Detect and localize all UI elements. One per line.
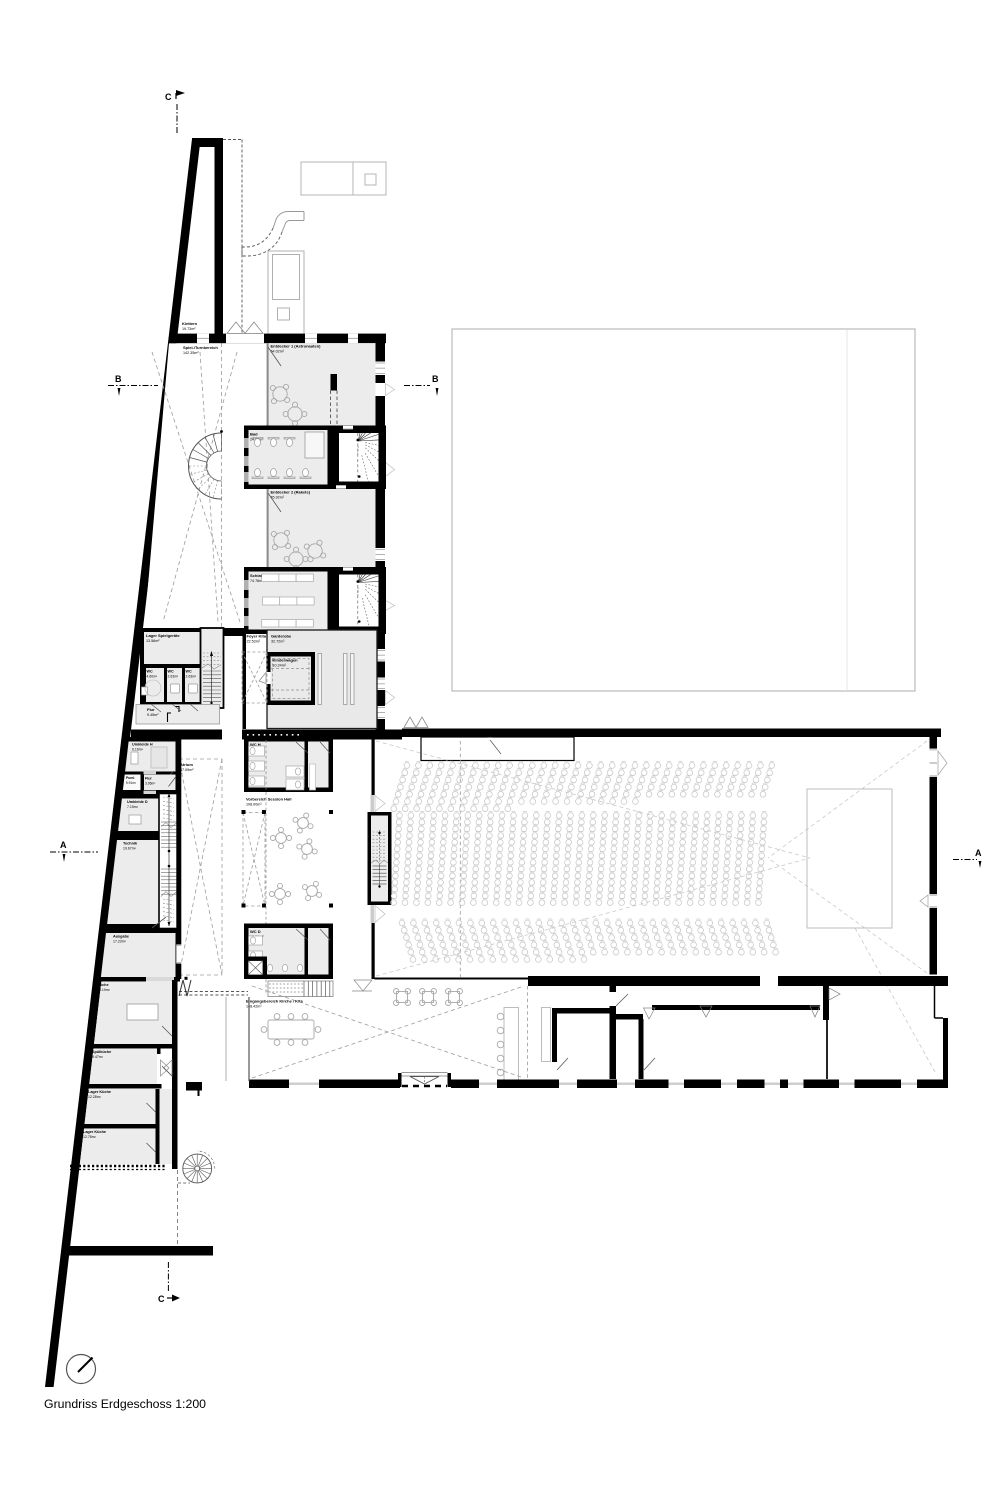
svg-text:Lager Spielgeräte: Lager Spielgeräte (146, 633, 180, 638)
svg-text:Bad: Bad (250, 432, 258, 437)
svg-text:12.28m²: 12.28m² (88, 1095, 102, 1099)
svg-text:Küche: Küche (97, 983, 109, 987)
svg-text:Flur: Flur (145, 777, 152, 781)
svg-text:Flur: Flur (147, 707, 155, 712)
svg-text:10.24m²: 10.24m² (273, 664, 287, 668)
svg-text:WC: WC (186, 670, 192, 674)
svg-text:25.19m²: 25.19m² (97, 988, 111, 992)
svg-text:WC: WC (168, 670, 174, 674)
svg-text:45.92m²: 45.92m² (271, 496, 285, 500)
svg-text:Ausgabe: Ausgabe (113, 935, 129, 939)
svg-text:7.15m²: 7.15m² (127, 805, 139, 809)
svg-text:Lager Küche: Lager Küche (88, 1090, 111, 1094)
svg-text:Eingangsbereich Kirche / Kita: Eingangsbereich Kirche / Kita (246, 999, 303, 1004)
svg-text:9.45m²: 9.45m² (147, 713, 159, 717)
svg-text:Technik: Technik (123, 842, 138, 846)
svg-text:C: C (165, 92, 172, 102)
svg-text:A: A (60, 840, 67, 850)
svg-text:Vorbereich Session Hall: Vorbereich Session Hall (246, 797, 292, 802)
svg-text:B: B (432, 374, 439, 384)
svg-text:32.72m²: 32.72m² (271, 640, 285, 644)
svg-text:Spiel-/Turnbereich: Spiel-/Turnbereich (183, 345, 218, 350)
svg-text:C: C (158, 1294, 165, 1304)
svg-text:13.56m²: 13.56m² (146, 639, 160, 643)
svg-text:64.02m²: 64.02m² (271, 350, 285, 354)
svg-text:22.53m²: 22.53m² (247, 640, 261, 644)
svg-text:Entdecker 2 (Rakete): Entdecker 2 (Rakete) (271, 490, 311, 495)
svg-text:B: B (115, 374, 122, 384)
svg-text:Grundriss Erdgeschoss 1:200: Grundriss Erdgeschoss 1:200 (44, 1397, 206, 1411)
svg-text:Foyer Kita: Foyer Kita (247, 634, 267, 639)
svg-text:2.63m²: 2.63m² (168, 675, 179, 679)
svg-text:142.35m²: 142.35m² (183, 351, 199, 355)
svg-text:Umkleide H: Umkleide H (132, 743, 153, 747)
svg-text:Entdecker 1 (Astronauten): Entdecker 1 (Astronauten) (271, 344, 322, 349)
svg-text:Kinderwagen: Kinderwagen (273, 658, 299, 663)
svg-text:4.60m²: 4.60m² (147, 675, 158, 679)
svg-text:Umkleide D: Umkleide D (127, 800, 148, 804)
svg-text:Lager Küche: Lager Küche (83, 1130, 106, 1134)
svg-text:12.78m²: 12.78m² (83, 1135, 97, 1139)
svg-text:A: A (975, 848, 982, 858)
svg-text:Garderobe: Garderobe (271, 634, 292, 639)
svg-text:Pumi: Pumi (126, 776, 134, 780)
svg-text:6.16m²: 6.16m² (132, 748, 144, 752)
svg-text:19.73m²: 19.73m² (182, 327, 196, 331)
svg-text:WC D: WC D (250, 929, 261, 934)
svg-text:5.91m²: 5.91m² (126, 781, 136, 785)
svg-text:108.00m²: 108.00m² (246, 803, 262, 807)
svg-text:Spülküche: Spülküche (92, 1050, 111, 1054)
svg-text:2.63m²: 2.63m² (186, 675, 197, 679)
svg-text:WC: WC (147, 670, 153, 674)
svg-text:Atrium: Atrium (180, 762, 193, 767)
svg-text:87.09m²: 87.09m² (180, 768, 194, 772)
svg-text:Klettern: Klettern (182, 321, 198, 326)
svg-text:17.23m²: 17.23m² (113, 940, 127, 944)
svg-text:3.95m²: 3.95m² (145, 782, 156, 786)
svg-text:9.47m²: 9.47m² (92, 1055, 104, 1059)
svg-text:19.67m²: 19.67m² (123, 847, 137, 851)
